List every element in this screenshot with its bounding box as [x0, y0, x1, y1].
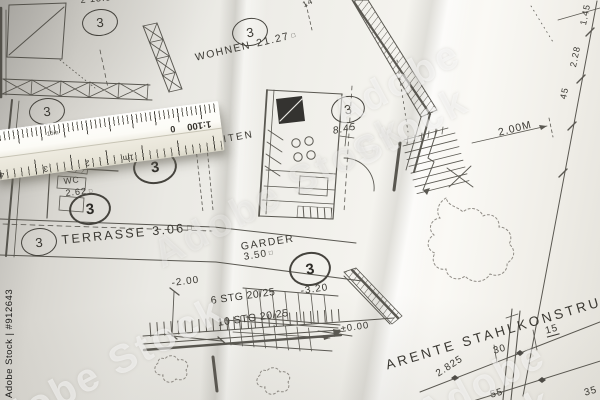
wohnen-wall-drawing: [306, 0, 553, 172]
square-meter-symbol: □: [89, 188, 93, 194]
square-meter-symbol: □: [187, 223, 192, 232]
ruler-zero-label: 0: [170, 124, 176, 135]
square-meter-symbol: □: [269, 250, 274, 256]
ruler-number: 1m: [122, 153, 134, 163]
pencil-stroke: [213, 357, 217, 391]
watermark-credit: Adobe Stock | #912643: [4, 289, 15, 398]
blueprint-photo: 3 3 3 3 3 3 3 3 2 13.3 WOHNEN21.27□ 14 8…: [0, 0, 600, 400]
